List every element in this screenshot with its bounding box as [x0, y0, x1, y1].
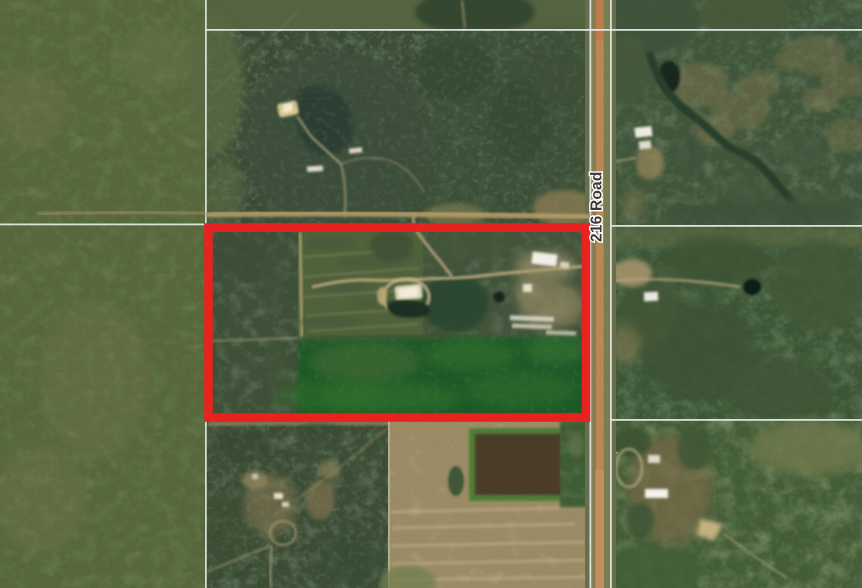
svg-text:216 Road: 216 Road [589, 171, 606, 242]
